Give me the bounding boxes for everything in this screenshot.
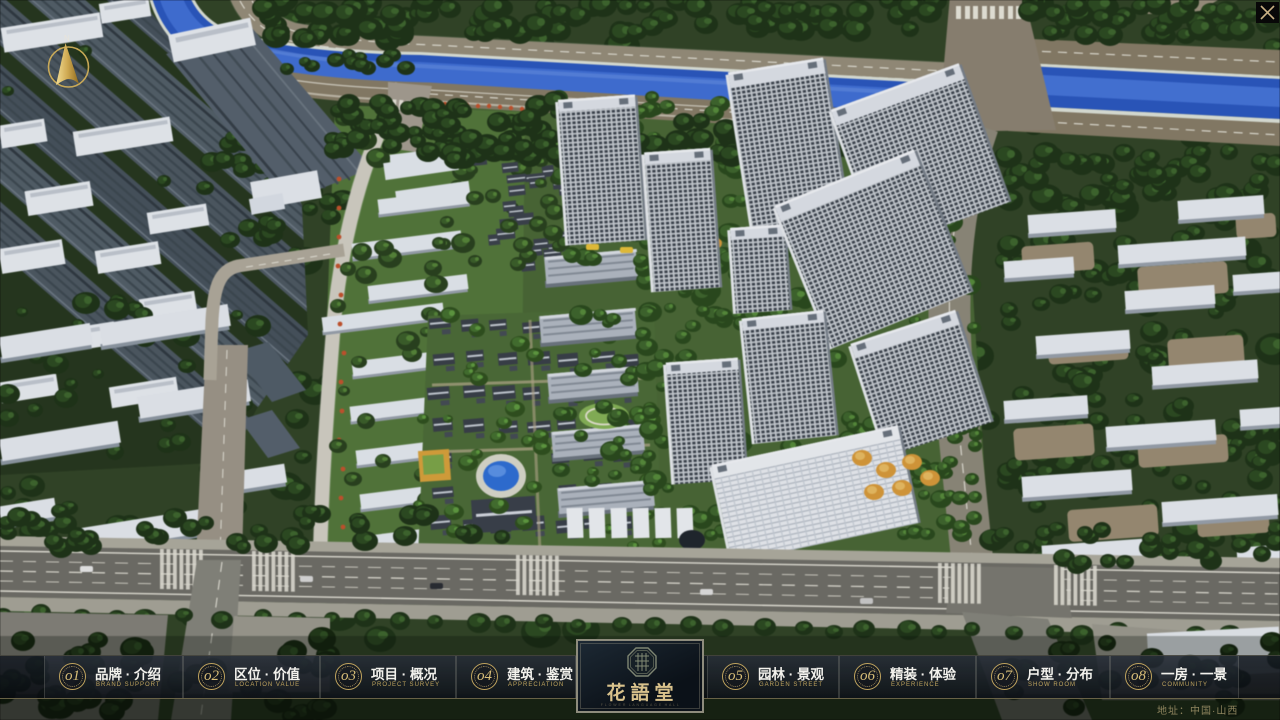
svg-text:N: N (64, 34, 70, 43)
